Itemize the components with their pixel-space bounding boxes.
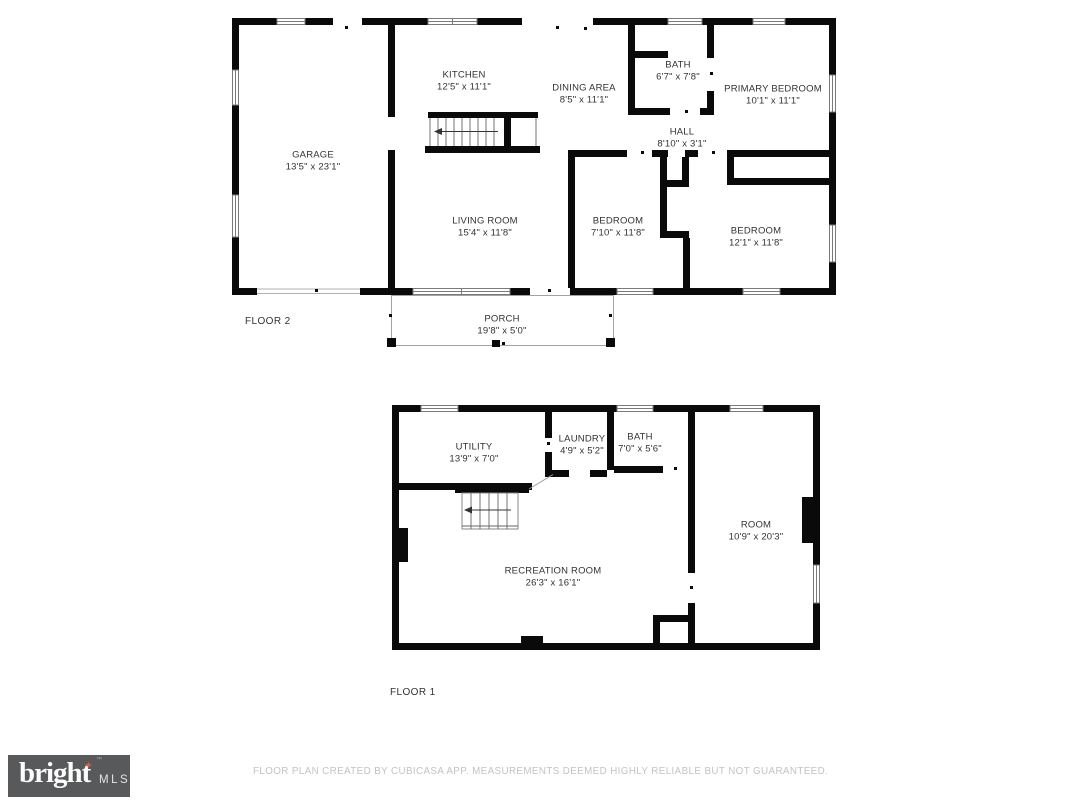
room-dims: 6'7" x 7'8" <box>656 71 700 83</box>
room-label-bath-lower: BATH 7'0" x 5'6" <box>618 432 662 455</box>
room-dims: 10'9" x 20'3" <box>729 531 784 543</box>
room-label-laundry: LAUNDRY 4'9" x 5'2" <box>559 434 606 457</box>
room-name: DINING AREA <box>552 83 615 95</box>
room-dims: 10'1" x 11'1" <box>724 95 822 107</box>
window-icon <box>233 195 239 237</box>
room-dims: 12'5" x 11'1" <box>437 81 491 93</box>
room-label-porch: PORCH 19'8" x 5'0" <box>477 314 526 337</box>
room-dims: 4'9" x 5'2" <box>559 445 606 457</box>
room-label-primary-bedroom: PRIMARY BEDROOM 10'1" x 11'1" <box>724 84 822 107</box>
room-name: LIVING ROOM <box>452 216 518 228</box>
room-dims: 7'0" x 5'6" <box>618 443 662 455</box>
window-icon <box>753 19 785 25</box>
floor2-label: FLOOR 2 <box>245 316 291 327</box>
window-icon <box>617 406 653 412</box>
garage-door-opening <box>257 289 360 294</box>
room-name: LAUNDRY <box>559 434 606 446</box>
bright-mls-logo: bright ✦ ™ MLS <box>8 755 130 797</box>
room-name: BEDROOM <box>591 216 645 228</box>
floor-plan-page: KITCHEN 12'5" x 11'1" DINING AREA 8'5" x… <box>0 0 1067 800</box>
room-dims: 26'3" x 16'1" <box>505 577 602 589</box>
staircase-floor1 <box>462 475 553 530</box>
room-dims: 13'9" x 7'0" <box>449 453 498 465</box>
room-name: UTILITY <box>449 442 498 454</box>
room-name: RECREATION ROOM <box>505 566 602 578</box>
room-label-bath-upper: BATH 6'7" x 7'8" <box>656 60 700 83</box>
room-dims: 12'1" x 11'8" <box>729 237 783 249</box>
room-label-bedroom-1: BEDROOM 7'10" x 11'8" <box>591 216 645 239</box>
room-name: BATH <box>656 60 700 72</box>
room-name: PORCH <box>477 314 526 326</box>
disclaimer-text: FLOOR PLAN CREATED BY CUBICASA APP. MEAS… <box>253 766 828 777</box>
room-dims: 15'4" x 11'8" <box>452 227 518 239</box>
window-icon <box>814 565 820 603</box>
room-label-recreation-room: RECREATION ROOM 26'3" x 16'1" <box>505 566 602 589</box>
window-icon <box>830 75 836 112</box>
staircase-floor2 <box>425 112 540 153</box>
stair-landing-line <box>529 475 553 490</box>
room-name: GARAGE <box>286 150 341 162</box>
room-label-living-room: LIVING ROOM 15'4" x 11'8" <box>452 216 518 239</box>
room-label-kitchen: KITCHEN 12'5" x 11'1" <box>437 70 491 93</box>
brand-name: bright <box>19 757 90 790</box>
floor2-interior-walls <box>388 25 836 288</box>
floor-plan-drawing <box>0 0 1067 800</box>
window-icon <box>233 70 239 105</box>
stair-direction-arrow <box>434 128 498 135</box>
floor1-label: FLOOR 1 <box>390 687 436 698</box>
room-label-dining-area: DINING AREA 8'5" x 11'1" <box>552 83 615 106</box>
window-icon <box>730 406 763 412</box>
star-icon: ✦ <box>84 759 93 772</box>
room-label-room: ROOM 10'9" x 20'3" <box>729 520 784 543</box>
room-name: HALL <box>657 127 706 139</box>
room-dims: 8'5" x 11'1" <box>552 94 615 106</box>
window-icon <box>428 19 477 25</box>
room-label-garage: GARAGE 13'5" x 23'1" <box>286 150 341 173</box>
room-name: PRIMARY BEDROOM <box>724 84 822 96</box>
window-icon <box>617 289 653 295</box>
window-icon <box>413 289 510 295</box>
room-label-bedroom-2: BEDROOM 12'1" x 11'8" <box>729 226 783 249</box>
window-icon <box>743 289 780 295</box>
window-icon <box>277 19 305 25</box>
room-name: BEDROOM <box>729 226 783 238</box>
room-dims: 19'8" x 5'0" <box>477 325 526 337</box>
room-dims: 7'10" x 11'8" <box>591 227 645 239</box>
window-icon <box>830 225 836 262</box>
room-dims: 13'5" x 23'1" <box>286 161 341 173</box>
room-dims: 8'10" x 3'1" <box>657 138 706 150</box>
room-name: ROOM <box>729 520 784 532</box>
window-icon <box>668 19 702 25</box>
room-label-hall: HALL 8'10" x 3'1" <box>657 127 706 150</box>
trademark-icon: ™ <box>96 757 102 763</box>
room-name: BATH <box>618 432 662 444</box>
window-icon <box>421 406 458 412</box>
brand-suffix: MLS <box>99 774 130 786</box>
floor2-door-markers <box>315 26 715 292</box>
room-name: KITCHEN <box>437 70 491 82</box>
room-label-utility: UTILITY 13'9" x 7'0" <box>449 442 498 465</box>
